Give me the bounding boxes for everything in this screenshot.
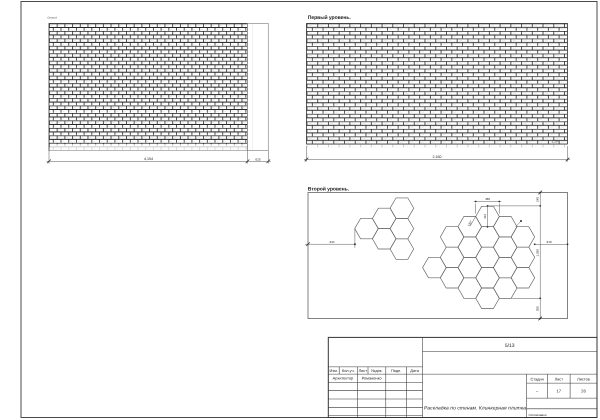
svg-text:26: 26 bbox=[581, 388, 586, 393]
svg-text:№док.: №док. bbox=[371, 368, 382, 373]
svg-text:Дата: Дата bbox=[410, 368, 419, 373]
svg-text:Кол.уч.: Кол.уч. bbox=[342, 368, 355, 373]
svg-text:120°: 120° bbox=[467, 219, 474, 227]
svg-text:4,154: 4,154 bbox=[144, 157, 153, 161]
svg-text:300: 300 bbox=[536, 306, 540, 311]
svg-text:Первый уровень.: Первый уровень. bbox=[308, 15, 352, 21]
svg-text:–: – bbox=[536, 388, 539, 393]
svg-text:Стена А: Стена А bbox=[48, 17, 58, 20]
svg-text:Согласовано: Согласовано bbox=[529, 413, 547, 417]
svg-text:480: 480 bbox=[485, 197, 490, 201]
svg-text:Стадия: Стадия bbox=[530, 377, 543, 382]
svg-text:Лист: Лист bbox=[359, 368, 368, 373]
svg-text:Второй уровень.: Второй уровень. bbox=[308, 187, 350, 193]
svg-text:240: 240 bbox=[536, 197, 540, 202]
svg-text:Романенко: Романенко bbox=[362, 376, 382, 381]
svg-text:17: 17 bbox=[556, 388, 561, 393]
svg-text:Раскладка по стенам. Клинкерна: Раскладка по стенам. Клинкерная плитка. bbox=[424, 405, 528, 411]
svg-text:1,920: 1,920 bbox=[536, 249, 540, 257]
svg-text:416: 416 bbox=[483, 214, 487, 219]
svg-text:Архитектор: Архитектор bbox=[333, 376, 354, 381]
svg-text:Листов: Листов bbox=[577, 377, 590, 382]
svg-text:1,20: 1,20 bbox=[552, 140, 558, 144]
svg-text:2,160: 2,160 bbox=[433, 155, 442, 159]
svg-text:625: 625 bbox=[255, 157, 260, 161]
svg-text:240: 240 bbox=[546, 240, 551, 244]
svg-text:5/13: 5/13 bbox=[505, 343, 515, 349]
svg-text:Подп.: Подп. bbox=[391, 368, 401, 373]
svg-text:Изм.: Изм. bbox=[330, 368, 338, 373]
svg-text:840: 840 bbox=[330, 240, 335, 244]
svg-text:Лист: Лист bbox=[555, 377, 564, 382]
